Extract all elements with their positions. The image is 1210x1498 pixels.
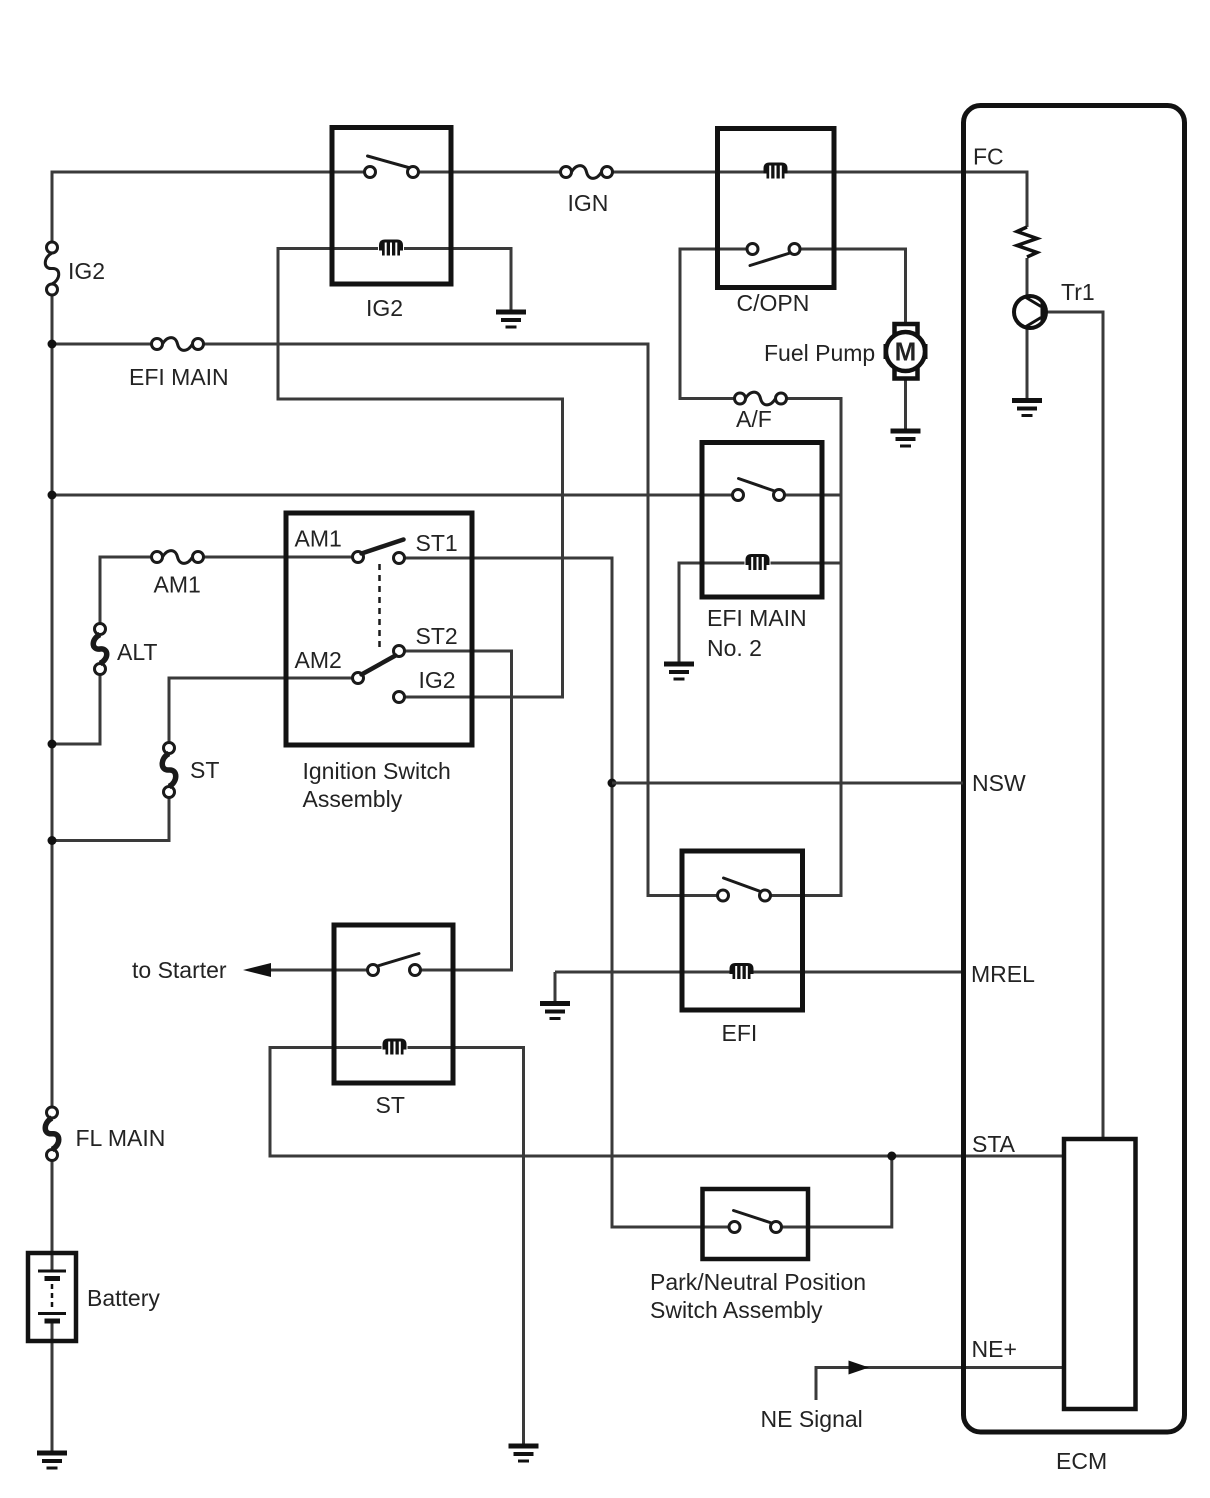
svg-text:NE Signal: NE Signal xyxy=(761,1406,863,1432)
svg-text:Battery: Battery xyxy=(87,1285,160,1311)
svg-text:ST: ST xyxy=(376,1092,405,1118)
svg-text:EFI MAIN: EFI MAIN xyxy=(129,364,229,390)
svg-text:IGN: IGN xyxy=(568,190,609,216)
svg-text:Ignition Switch: Ignition Switch xyxy=(303,758,451,784)
svg-text:IG2: IG2 xyxy=(366,295,403,321)
svg-text:AM1: AM1 xyxy=(295,526,342,552)
svg-text:No. 2: No. 2 xyxy=(707,635,762,661)
svg-text:Switch Assembly: Switch Assembly xyxy=(650,1297,823,1323)
svg-text:AM2: AM2 xyxy=(295,647,342,673)
svg-text:ST1: ST1 xyxy=(416,530,458,556)
svg-text:Park/Neutral Position: Park/Neutral Position xyxy=(650,1269,866,1295)
svg-text:ECM: ECM xyxy=(1056,1448,1107,1474)
svg-text:C/OPN: C/OPN xyxy=(737,290,810,316)
svg-text:AM1: AM1 xyxy=(154,572,201,598)
svg-text:EFI MAIN: EFI MAIN xyxy=(707,605,807,631)
svg-text:IG2: IG2 xyxy=(419,667,456,693)
svg-text:Tr1: Tr1 xyxy=(1061,279,1095,305)
svg-text:EFI: EFI xyxy=(722,1020,758,1046)
svg-text:STA: STA xyxy=(972,1131,1016,1157)
svg-text:FC: FC xyxy=(973,144,1004,170)
svg-text:Fuel Pump: Fuel Pump xyxy=(764,340,875,366)
svg-text:Assembly: Assembly xyxy=(303,786,403,812)
svg-text:to Starter: to Starter xyxy=(132,957,227,983)
svg-text:NSW: NSW xyxy=(972,770,1026,796)
svg-text:IG2: IG2 xyxy=(68,258,105,284)
svg-text:ALT: ALT xyxy=(117,639,157,665)
svg-text:A/F: A/F xyxy=(736,406,772,432)
svg-text:ST2: ST2 xyxy=(416,623,458,649)
svg-text:M: M xyxy=(895,337,917,367)
svg-text:MREL: MREL xyxy=(971,961,1035,987)
svg-text:FL MAIN: FL MAIN xyxy=(76,1125,166,1151)
svg-text:ST: ST xyxy=(190,757,219,783)
svg-text:NE+: NE+ xyxy=(972,1336,1017,1362)
